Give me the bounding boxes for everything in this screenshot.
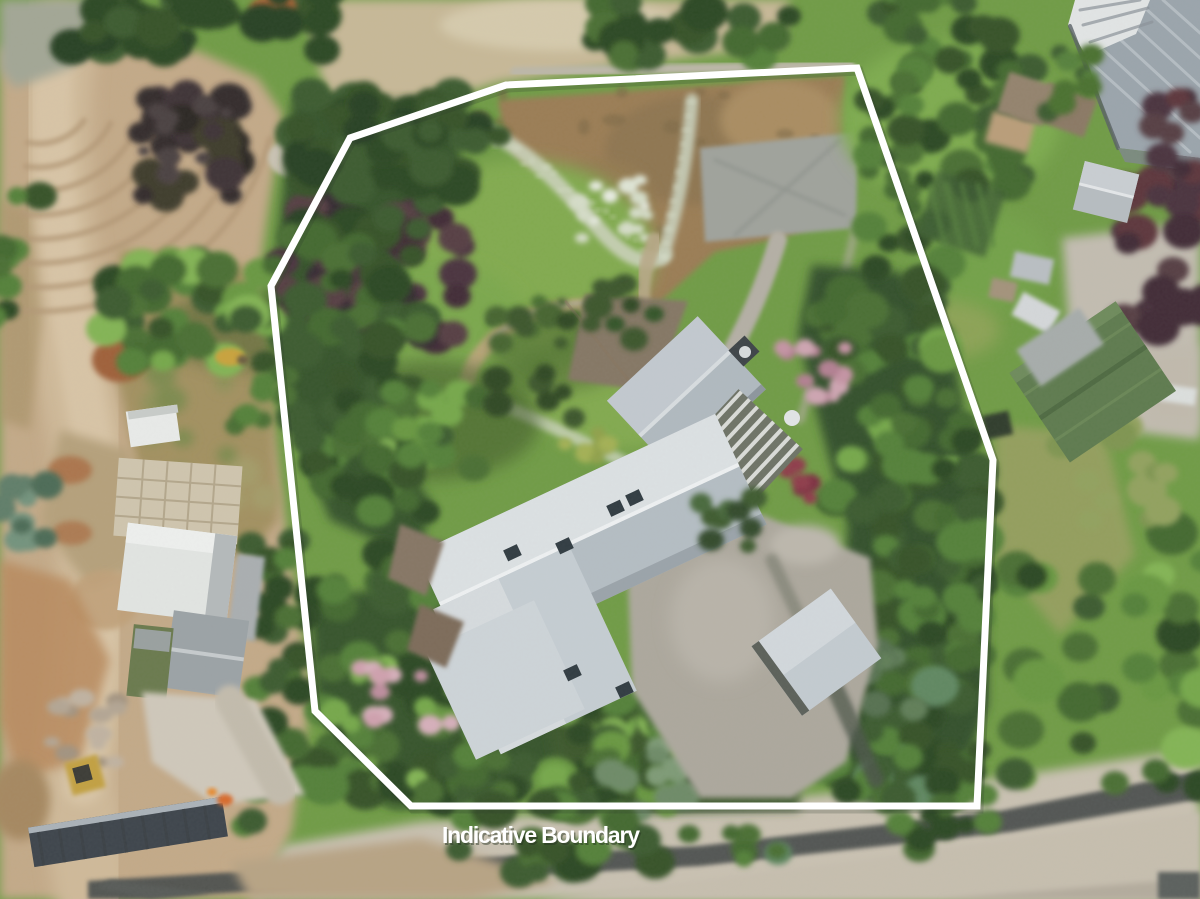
svg-text:Indicative Boundary: Indicative Boundary	[442, 822, 640, 848]
